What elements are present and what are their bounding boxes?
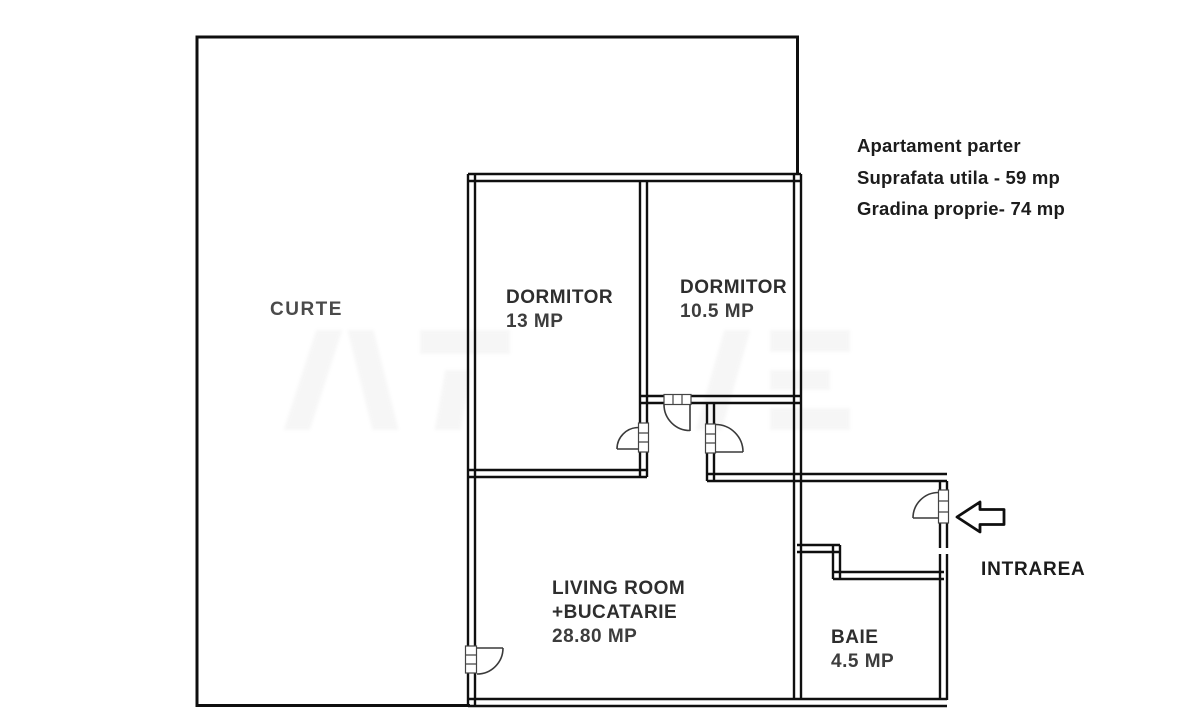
dormitor2-door-jamb — [664, 395, 691, 405]
room-label-living: LIVING ROOM +BUCATARIE 28.80 MP — [552, 577, 685, 649]
room-name-dormitor2: DORMITOR — [680, 276, 787, 300]
garden-boundary — [197, 37, 798, 706]
storage-door-swing — [716, 425, 744, 453]
room-label-dormitor2: DORMITOR 10.5 MP — [680, 276, 787, 324]
storage-door-jamb — [706, 424, 716, 453]
dormitor1-door-jamb — [639, 423, 649, 452]
room-label-baie: BAIE 4.5 MP — [831, 626, 894, 674]
info-block: Apartament parter Suprafata utila - 59 m… — [857, 130, 1065, 225]
room-area-dormitor2: 10.5 MP — [680, 300, 787, 324]
info-line-title: Apartament parter — [857, 130, 1065, 162]
room-label-dormitor1: DORMITOR 13 MP — [506, 286, 613, 334]
room-area-baie: 4.5 MP — [831, 650, 894, 674]
info-line-garden-area: Gradina proprie- 74 mp — [857, 193, 1065, 225]
garden-door-swing — [477, 648, 503, 674]
room-name-dormitor1: DORMITOR — [506, 286, 613, 310]
room-label-curte: CURTE — [270, 299, 343, 321]
entrance-door-swing — [913, 493, 939, 519]
room-area-living: 28.80 MP — [552, 625, 685, 649]
room-name-baie: BAIE — [831, 626, 894, 650]
entrance-label: INTRAREA — [981, 559, 1086, 581]
garden-door-jamb — [466, 646, 477, 673]
entrance-arrow-icon — [957, 502, 1004, 532]
dormitor1-door-swing — [617, 428, 639, 450]
dormitor2-door-swing — [664, 405, 690, 432]
room-name-living: LIVING ROOM — [552, 577, 685, 601]
floor-plan-page: CURTE DORMITOR 13 MP DORMITOR 10.5 MP LI… — [0, 0, 1184, 720]
entrance-door-jamb — [939, 490, 949, 523]
room-name-living-2: +BUCATARIE — [552, 601, 685, 625]
info-line-usable-area: Suprafata utila - 59 mp — [857, 162, 1065, 194]
room-area-dormitor1: 13 MP — [506, 310, 613, 334]
